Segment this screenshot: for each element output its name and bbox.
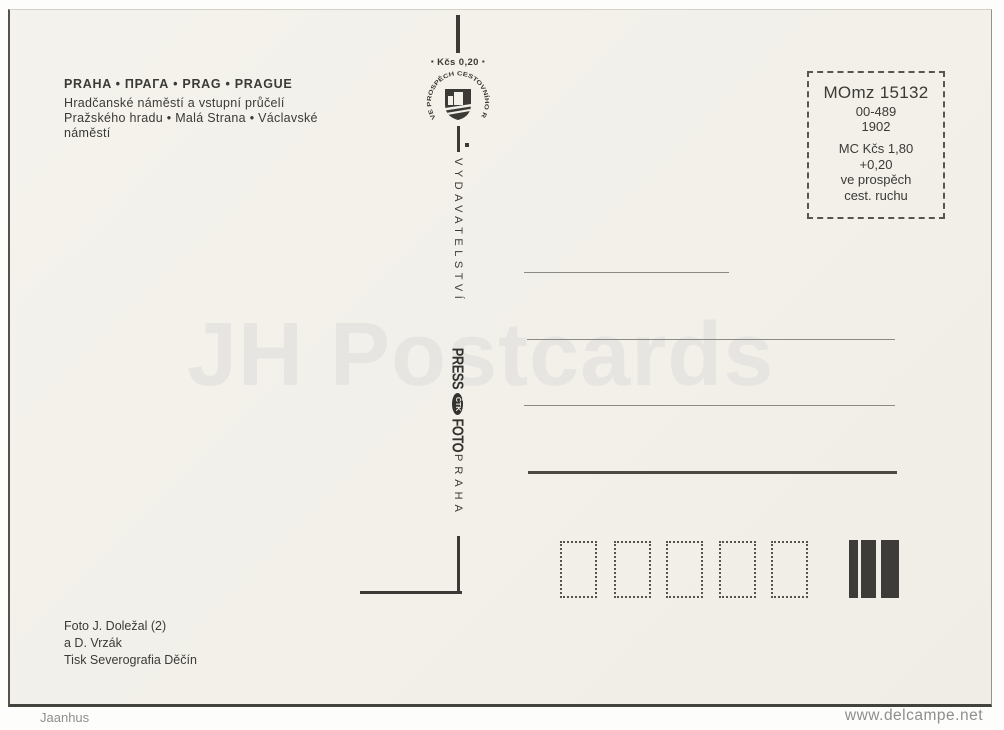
sorting-bar bbox=[849, 540, 858, 598]
logo-press-text: PRESS bbox=[449, 348, 467, 389]
castle-tower bbox=[454, 92, 463, 105]
stamp-line: +0,20 bbox=[809, 157, 943, 173]
postal-code-box bbox=[771, 541, 808, 598]
stamp-line: 1902 bbox=[809, 119, 943, 134]
castle-wall bbox=[448, 96, 453, 105]
address-line bbox=[527, 339, 895, 340]
credit-line: Foto J. Doležal (2) bbox=[64, 618, 197, 635]
postcard-title: PRAHA • ПРАГА • PRAG • PRAGUE bbox=[64, 77, 318, 91]
divider-line-segment bbox=[457, 126, 460, 152]
divider-foot-line bbox=[360, 591, 462, 594]
stamp-spacer bbox=[809, 134, 943, 141]
publisher-vertical-text: VYDAVATELSTVÍ bbox=[450, 158, 466, 303]
stamp-line: MC Kčs 1,80 bbox=[809, 141, 943, 157]
logo-foto-text: FOTO bbox=[449, 419, 467, 453]
postal-code-box bbox=[719, 541, 756, 598]
stamp-line: 00-489 bbox=[809, 104, 943, 119]
postcard-subtitle-line: Hradčanské náměstí a vstupní průčelí bbox=[64, 96, 318, 111]
postcard-back: JH Postcards PRAHA • ПРАГА • PRAG • PRAG… bbox=[8, 9, 992, 707]
postal-code-box bbox=[614, 541, 651, 598]
address-line-bold bbox=[528, 471, 897, 474]
postcard-subtitle-line: Pražského hradu • Malá Strana • Václavsk… bbox=[64, 111, 318, 126]
postal-code-box bbox=[560, 541, 597, 598]
stamp-code: MOmz 15132 bbox=[809, 83, 943, 102]
credit-line: a D. Vrzák bbox=[64, 635, 197, 652]
divider-line-top bbox=[456, 15, 460, 53]
address-line bbox=[524, 272, 729, 273]
city-vertical-text: PRAHA bbox=[450, 454, 466, 517]
caption-block: PRAHA • ПРАГА • PRAG • PRAGUE Hradčanské… bbox=[64, 77, 318, 141]
credit-line: Tisk Severografia Děčín bbox=[64, 652, 197, 669]
square-bullet-icon bbox=[465, 143, 469, 147]
divider-line-bottom bbox=[457, 536, 460, 593]
stamp-box: MOmz 15132 00-489 1902 MC Kčs 1,80 +0,20… bbox=[807, 71, 945, 219]
ctk-oval-badge: ČTK bbox=[453, 393, 464, 415]
postcard-subtitle-line: náměstí bbox=[64, 126, 318, 141]
credits-block: Foto J. Doležal (2) a D. Vrzák Tisk Seve… bbox=[64, 618, 197, 669]
address-line bbox=[524, 405, 895, 406]
postal-code-box bbox=[666, 541, 703, 598]
ctk-shield-emblem-icon: VE PROSPĚCH CESTOVNÍHO RUCHU bbox=[424, 63, 492, 131]
sorting-bar bbox=[881, 540, 899, 598]
pressfoto-logo: PRESS ČTK FOTO bbox=[443, 347, 473, 453]
sorting-bar bbox=[861, 540, 876, 598]
stamp-line: ve prospěch bbox=[809, 172, 943, 188]
site-url-label: www.delcampe.net bbox=[845, 707, 983, 725]
stamp-line: cest. ruchu bbox=[809, 188, 943, 204]
pressfoto-logo-inner: PRESS ČTK FOTO bbox=[450, 346, 466, 454]
seller-name-label: Jaanhus bbox=[40, 710, 89, 725]
